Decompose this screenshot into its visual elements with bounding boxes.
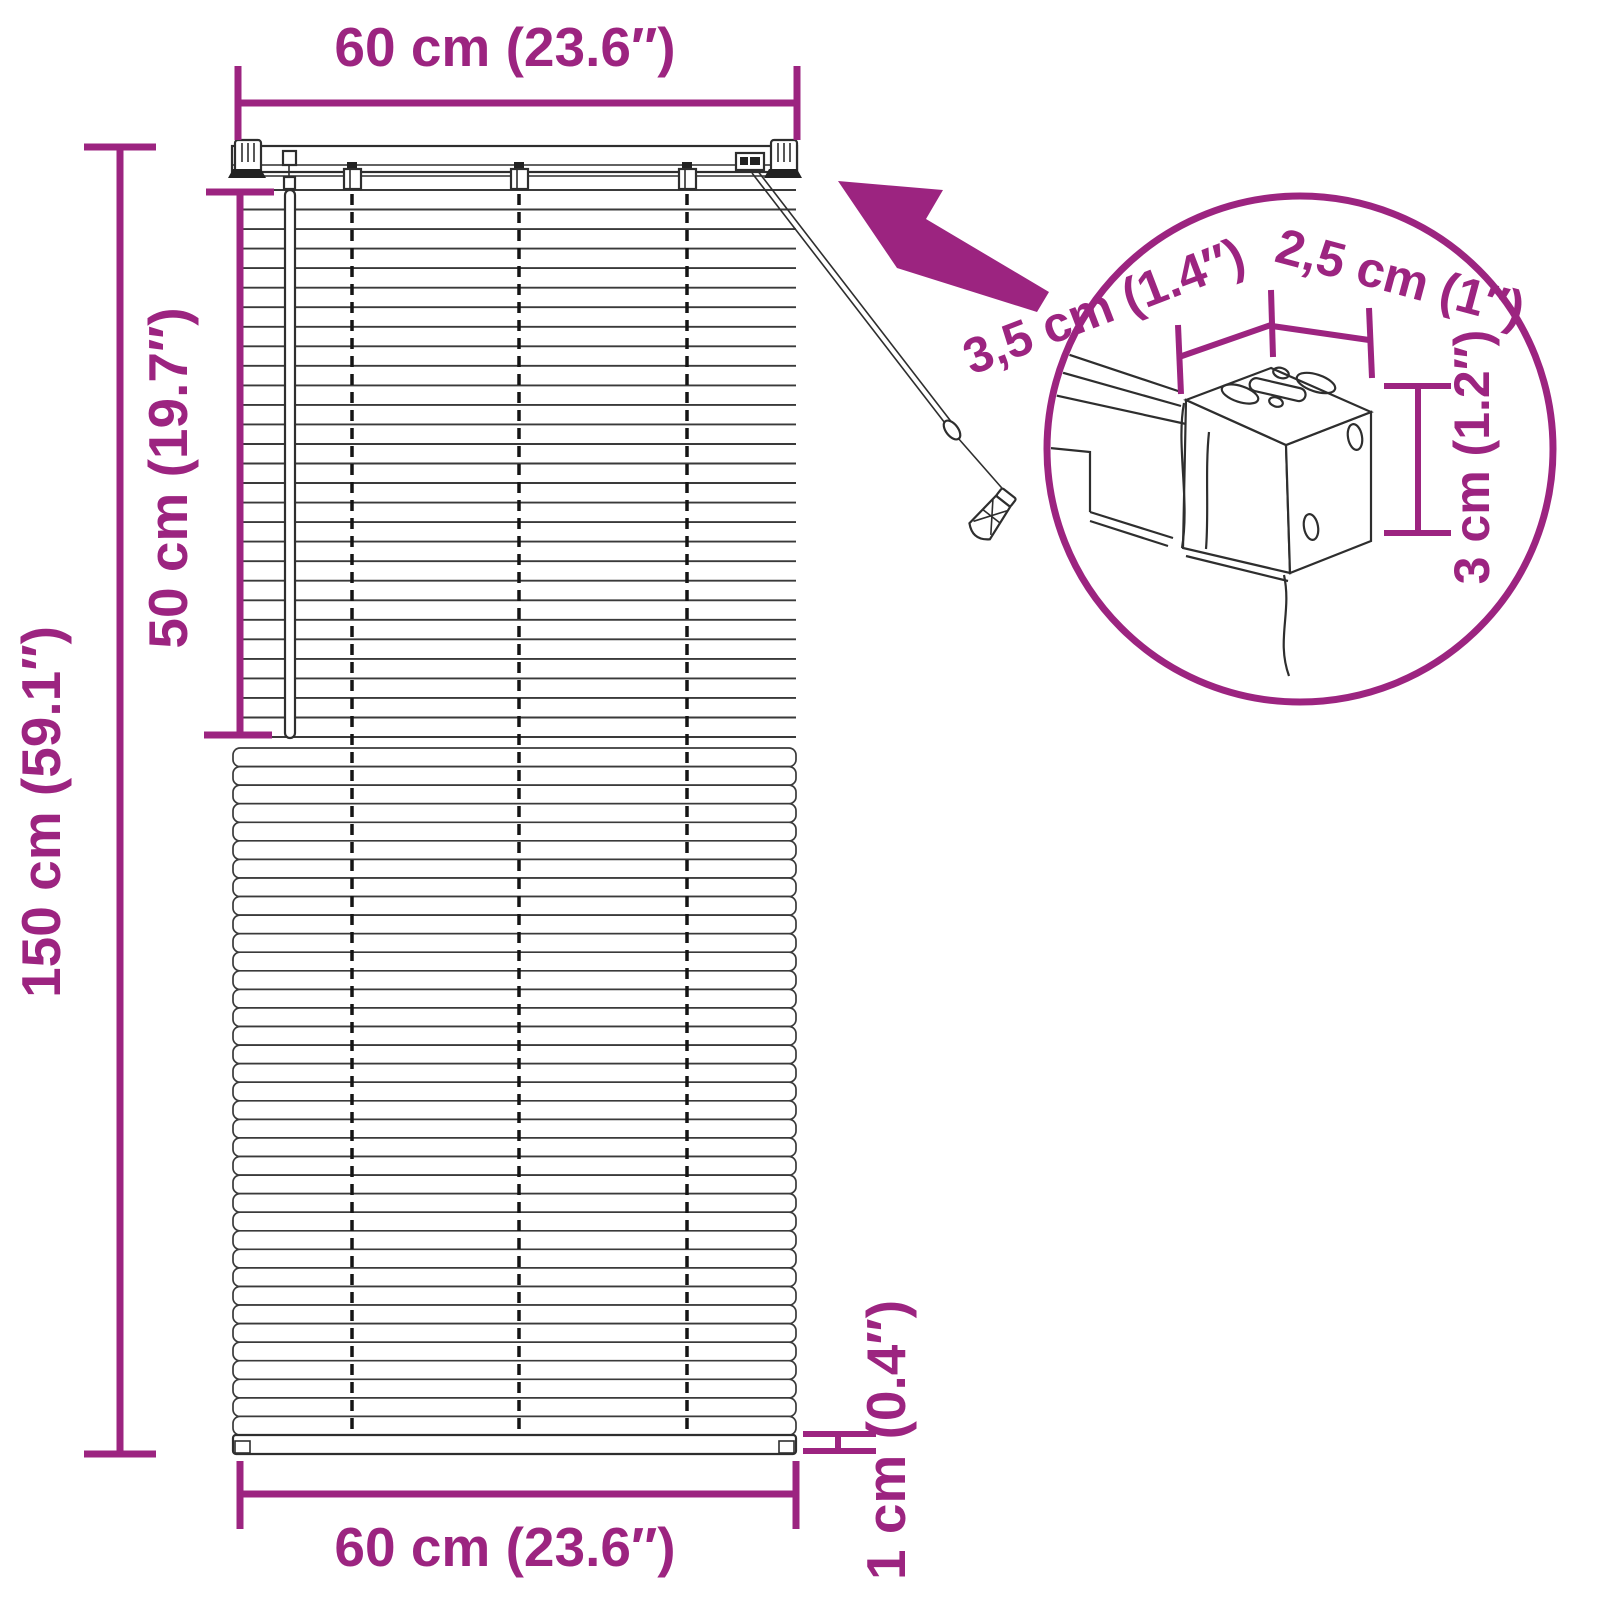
closed-slat xyxy=(233,1119,796,1138)
closed-slat xyxy=(233,767,796,786)
cord-lock xyxy=(736,153,764,170)
closed-slat xyxy=(233,1268,796,1287)
label-bottom-width: 60 cm (23.6″) xyxy=(334,1516,675,1578)
closed-slat xyxy=(233,897,796,916)
label-bracket-height: 3 cm (1.2″) xyxy=(1444,330,1500,585)
bracket-detail-inset: 3,5 cm (1.4″) 2,5 cm (1″) 3 cm (1.2″) xyxy=(838,181,1553,702)
closed-slat xyxy=(233,952,796,971)
closed-slat xyxy=(233,1379,796,1398)
closed-slat xyxy=(233,841,796,860)
blind-drawing xyxy=(228,140,1019,1454)
closed-slat xyxy=(233,822,796,841)
label-drop-section: 50 cm (19.7″) xyxy=(137,307,199,648)
closed-slat xyxy=(233,934,796,953)
headrail xyxy=(228,140,802,189)
closed-slat xyxy=(233,1045,796,1064)
closed-slat xyxy=(233,971,796,990)
closed-slat xyxy=(233,1027,796,1046)
label-bottom-rail: 1 cm (0.4″) xyxy=(855,1300,917,1580)
label-top-width: 60 cm (23.6″) xyxy=(334,16,675,78)
closed-slat xyxy=(233,1008,796,1027)
closed-slat xyxy=(233,1157,796,1176)
closed-slat xyxy=(233,1398,796,1417)
closed-slat xyxy=(233,1249,796,1268)
closed-slat xyxy=(233,878,796,897)
closed-slat xyxy=(233,1138,796,1157)
closed-slat xyxy=(233,1175,796,1194)
diagram-svg: 60 cm (23.6″) 150 cm (59.1″) 50 cm (19.7… xyxy=(0,0,1600,1600)
closed-slat xyxy=(233,1212,796,1231)
closed-slat xyxy=(233,1361,796,1380)
closed-slat xyxy=(233,1342,796,1361)
tilt-wand xyxy=(285,190,295,738)
closed-slat xyxy=(233,1064,796,1083)
closed-slat xyxy=(233,1082,796,1101)
pointer-arrow-icon xyxy=(838,181,1049,312)
blinds-dimension-diagram: 60 cm (23.6″) 150 cm (59.1″) 50 cm (19.7… xyxy=(0,0,1600,1600)
closed-slat xyxy=(233,1416,796,1435)
cord-tassel xyxy=(966,485,1020,544)
closed-slats xyxy=(233,748,796,1435)
closed-slat xyxy=(233,1101,796,1120)
bottom-rail xyxy=(233,1435,796,1454)
closed-slat xyxy=(233,915,796,934)
closed-slat xyxy=(233,1287,796,1306)
closed-slat xyxy=(233,785,796,804)
closed-slat xyxy=(233,1324,796,1343)
closed-slat xyxy=(233,989,796,1008)
closed-slat xyxy=(233,1194,796,1213)
closed-slat xyxy=(233,1231,796,1250)
label-total-height: 150 cm (59.1″) xyxy=(10,626,72,998)
closed-slat xyxy=(233,859,796,878)
closed-slat xyxy=(233,1305,796,1324)
closed-slat xyxy=(233,748,796,767)
closed-slat xyxy=(233,804,796,823)
